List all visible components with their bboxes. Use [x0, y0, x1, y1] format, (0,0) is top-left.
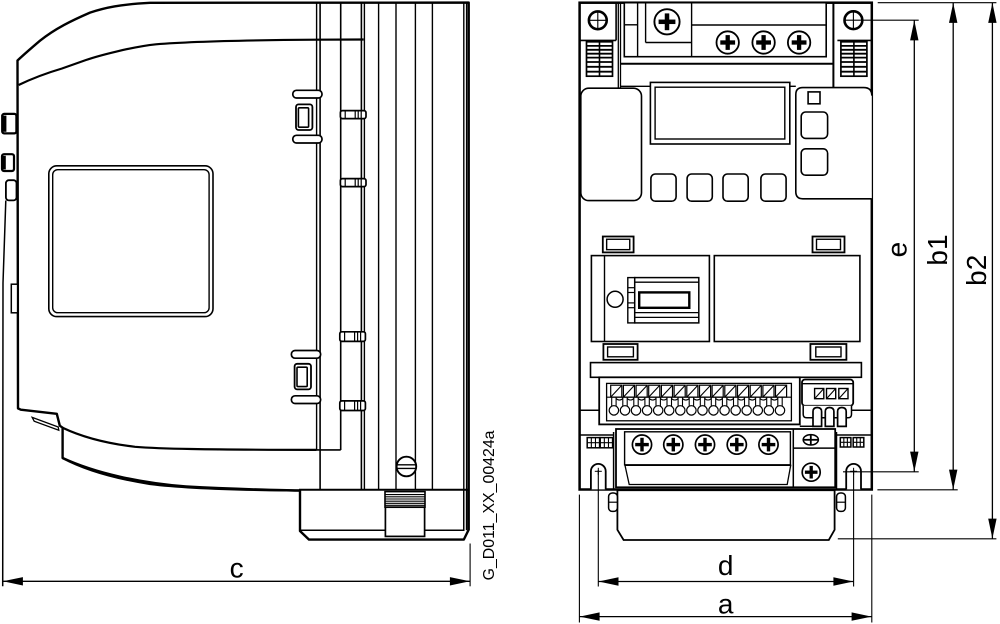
svg-text:a: a — [718, 589, 734, 620]
svg-text:b1: b1 — [922, 234, 953, 265]
svg-text:c: c — [230, 552, 244, 583]
svg-text:d: d — [718, 550, 734, 581]
svg-text:G_D011_XX_00424a: G_D011_XX_00424a — [481, 430, 498, 580]
svg-text:e: e — [882, 242, 913, 258]
svg-text:b2: b2 — [961, 255, 992, 286]
